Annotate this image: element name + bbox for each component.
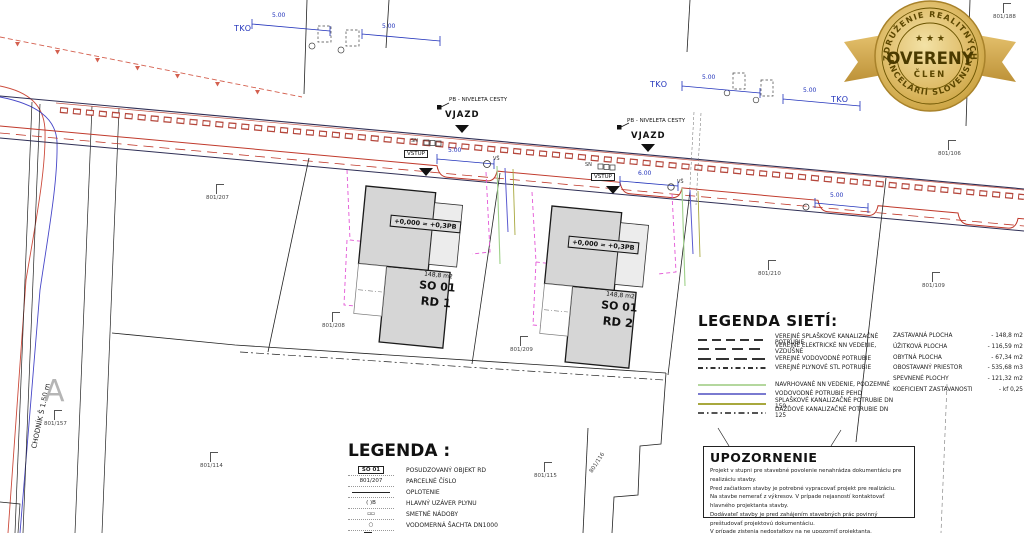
legend-row: OPLOTENIE: [348, 487, 598, 498]
tko-stands: [309, 26, 773, 103]
house-rd2: [537, 206, 649, 369]
notice-box: UPOZORNENIE Projekt v stupni pre stavebn…: [703, 446, 915, 518]
parcel-801-210: 801/210: [758, 260, 781, 277]
notice-line: Na stavbe nemerať z výkresov. V prípade …: [710, 493, 908, 511]
parcel-801-207: 801/207: [206, 184, 229, 201]
dim-label-5: 5.00: [448, 147, 461, 154]
sn-label-2: SN: [585, 162, 592, 168]
line-swatch-gas-public: [698, 367, 766, 369]
notice-line: V prípade zistenia nedostatkov na ne upo…: [710, 528, 908, 533]
symbols-legend-title: LEGENDA :: [348, 441, 598, 461]
vstup-label-2: VSTUP: [591, 173, 615, 181]
north-mark: A: [44, 374, 65, 409]
overhead-line-hatched: [0, 37, 302, 97]
areas-table: ZASTAVANÁ PLOCHA- 148,8 m2 ÚŽITKOVÁ PLOC…: [893, 333, 1023, 398]
sidewalk-lines: [0, 86, 119, 533]
dim-label-7: 5.00: [830, 192, 843, 199]
networks-legend-row: VEREJNÉ PLYNOVÉ STL POTRUBIE: [698, 364, 898, 374]
dim-label-4: 5.00: [803, 87, 816, 94]
tko-label-1: TKO: [234, 24, 252, 33]
dim-label-2: 5.00: [382, 23, 395, 30]
networks-legend: LEGENDA SIETÍ: VEREJNÉ SPLAŠKOVÉ KANALIZ…: [698, 312, 898, 418]
networks-legend-row: DAŽĎOVÉ KANALIZAČNÉ POTRUBIE DN 125: [698, 409, 898, 419]
vjazd-label-1: VJAZD: [445, 110, 480, 120]
notice-line: Projekt v stupni pre stavebné povolenie …: [710, 467, 908, 485]
vstup-label-1: VSTUP: [404, 150, 428, 158]
networks-legend-title: LEGENDA SIETÍ:: [698, 312, 898, 330]
legend-row: SO 01POSUDZOVANÝ OBJEKT RD: [348, 465, 598, 476]
area-row: KOEFICIENT ZASTAVANOSTI- kf 0,25: [893, 387, 1023, 398]
dim-label-3: 5.00: [702, 74, 715, 81]
networks-legend-row: VEREJNÉ ELEKTRICKÉ NN VEDENIE, VZDUŠNÉ: [698, 345, 898, 355]
vs-label-2: VŠ: [677, 179, 684, 185]
notice-line: Pred začiatkom stavby je potrebné vyprac…: [710, 485, 908, 494]
house-rd1: [351, 186, 463, 349]
parcel-801-209: 801/209: [510, 336, 533, 353]
notice-title: UPOZORNENIE: [710, 450, 908, 465]
area-row: OBYTNÁ PLOCHA- 67,34 m2: [893, 355, 1023, 366]
pb-niveleta-label-2: PB - NIVELETA CESTY: [627, 118, 685, 124]
line-swatch-sewer-public: [698, 339, 766, 341]
badge-title: OVERENÝ: [886, 49, 974, 68]
verified-member-badge: ZDRUŽENIE REALITNÝCH KANCELÁRIÍ SLOVENSK…: [840, 0, 1020, 120]
parcel-801-106: 801/106: [938, 140, 961, 157]
legend-row: ○VODOMERNÁ ŠACHTA DN1000: [348, 520, 598, 531]
dim-label-1: 5.00: [272, 12, 285, 19]
line-swatch-water-public: [698, 358, 766, 360]
house2-labels: 148,8 m2 SO 01 RD 2: [577, 288, 660, 332]
parcel-801-114: 801/114: [200, 452, 223, 469]
area-row: OBOSTAVANÝ PRIESTOR- 535,68 m3: [893, 365, 1023, 376]
parcel-801-208: 801/208: [322, 312, 345, 329]
parcel-801-157: 801/157: [44, 410, 67, 427]
badge-subtitle: ČLEN: [914, 68, 947, 80]
tko-label-2: TKO: [650, 80, 668, 89]
fence-line-symbol: [352, 492, 390, 493]
notice-line: Dodávateľ stavby je pred zahájením stave…: [710, 511, 908, 529]
vjazd-label-2: VJAZD: [631, 131, 666, 141]
vs-label-1: VŠ: [493, 156, 500, 162]
line-swatch-rain-pipe: [698, 412, 766, 414]
dim-label-6: 6.00: [638, 170, 651, 177]
networks-legend-row: VEREJNÉ VODOVODNÉ POTRUBIE: [698, 354, 898, 364]
networks-legend-row: NAVRHOVANÉ NN VEDENIE, PODZEMNÉ: [698, 380, 898, 390]
badge-stars: ★ ★ ★: [915, 34, 945, 44]
line-swatch-sewer-pipe: [698, 403, 766, 405]
legend-row: 801/207PARCELNÉ ČÍSLO: [348, 476, 598, 487]
site-plan-canvas: TKO TKO TKO 5.00 5.00 5.00 5.00 5.00 6.0…: [0, 0, 1024, 533]
house1-labels: 148,8 m2 SO 01 RD 1: [395, 268, 478, 312]
area-row: ÚŽITKOVÁ PLOCHA- 116,59 m2: [893, 344, 1023, 355]
area-row: SPEVNENÉ PLOCHY- 121,32 m2: [893, 376, 1023, 387]
symbols-legend: LEGENDA : SO 01POSUDZOVANÝ OBJEKT RD 801…: [348, 441, 598, 533]
line-swatch-nn-proposed: [698, 384, 766, 386]
area-row: ZASTAVANÁ PLOCHA- 148,8 m2: [893, 333, 1023, 344]
legend-gap: [698, 373, 898, 380]
pb-niveleta-label-1: PB - NIVELETA CESTY: [449, 97, 507, 103]
line-swatch-water-pipe: [698, 393, 766, 395]
badge-medal: ZDRUŽENIE REALITNÝCH KANCELÁRIÍ SLOVENSK…: [875, 1, 985, 111]
sn-label-1: SN: [411, 138, 418, 144]
line-swatch-electric-public: [698, 348, 766, 350]
parcel-801-109: 801/109: [922, 272, 945, 289]
legend-row: ▫▫SMETNÉ NÁDOBY: [348, 509, 598, 520]
legend-row: ( )BHLAVNÝ UZÁVER PLYNU: [348, 498, 598, 509]
